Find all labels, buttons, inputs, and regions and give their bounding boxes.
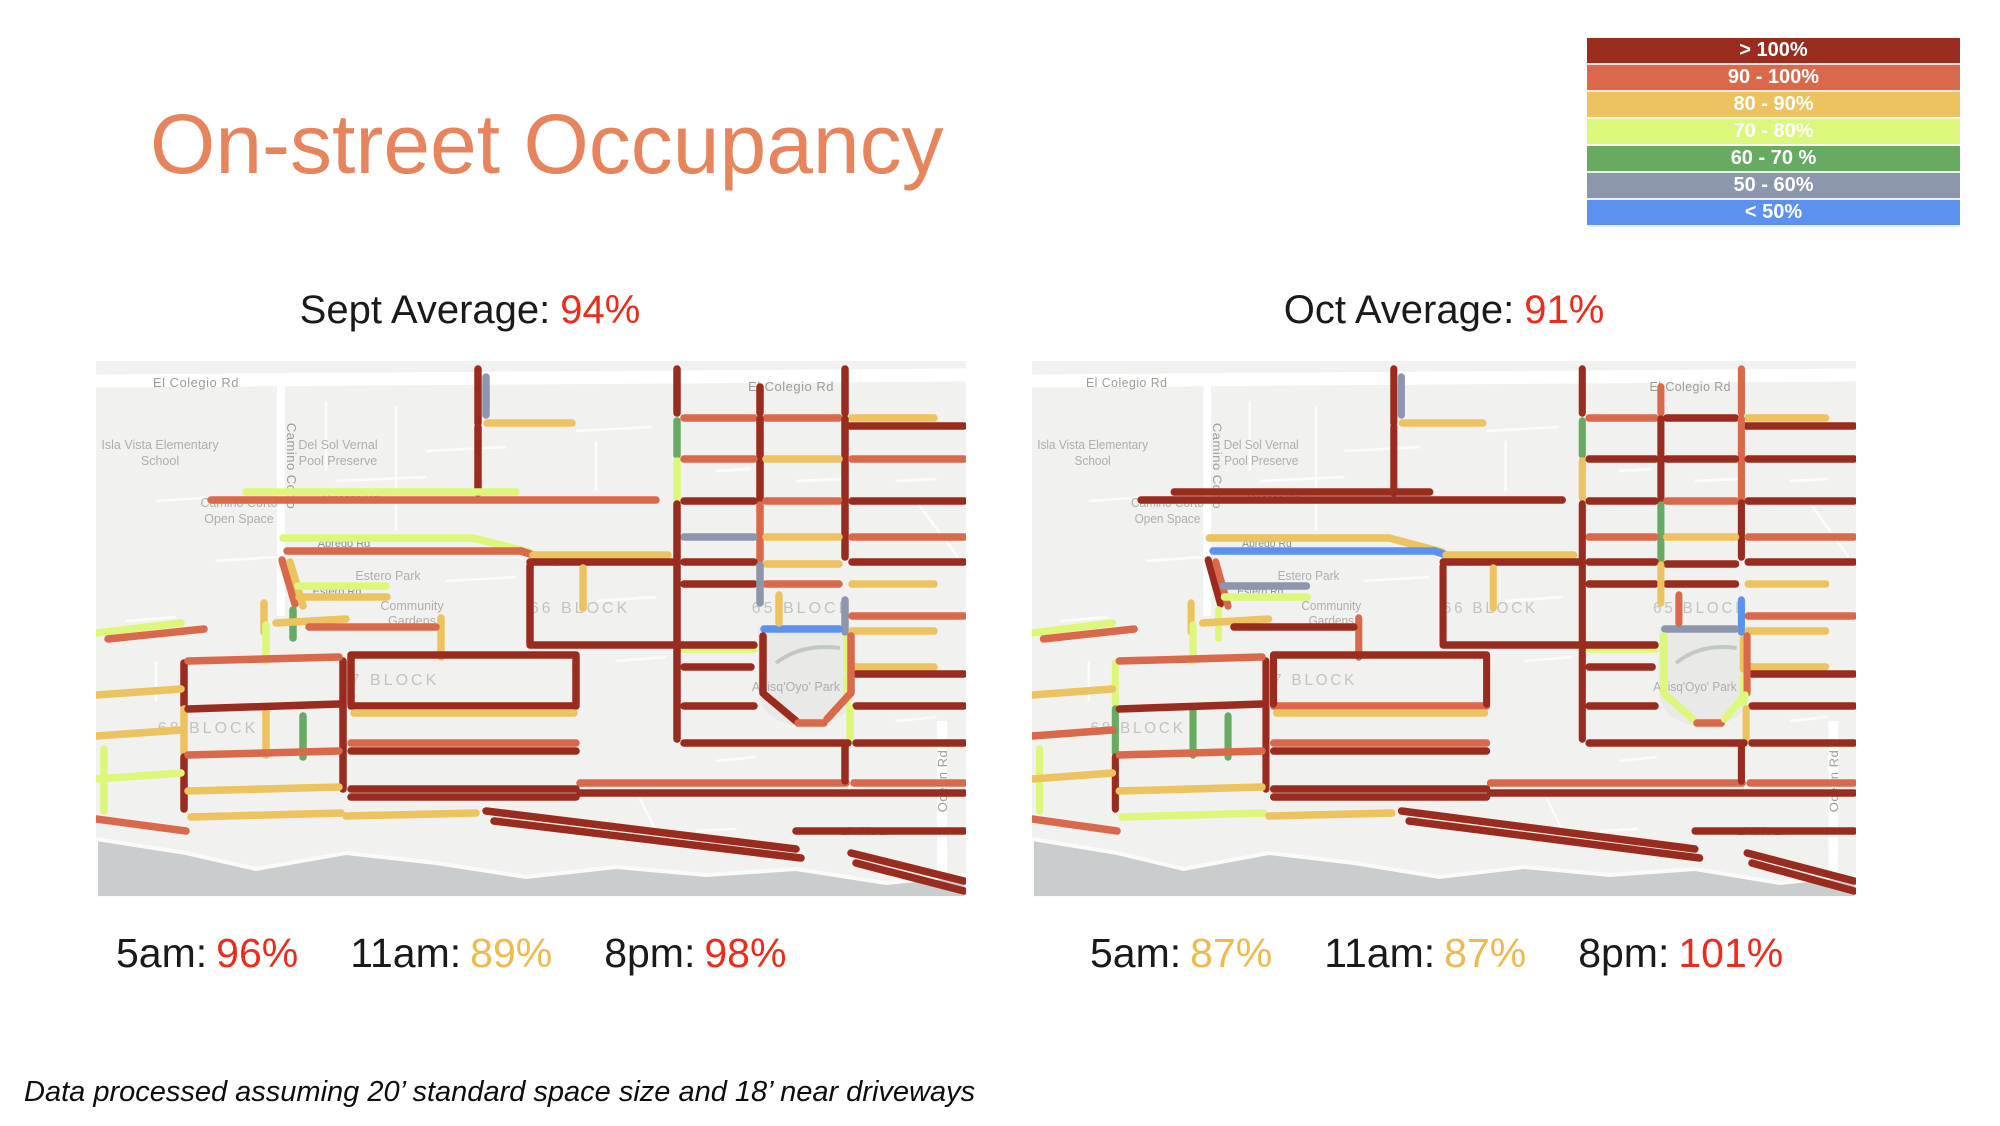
map-label: Del Sol Vernal [298,438,377,452]
stat-label: 8pm: [604,930,695,976]
oct-hourly-stats: 5am:87%11am:87%8pm:101% [1090,930,1783,977]
sept-average-label: Sept Average: [300,288,551,332]
oct-occupancy-map: El Colegio RdEl Colegio RdCamino CortoIs… [1032,361,1856,898]
map-label: School [1075,454,1111,468]
map-label: Open Space [1135,512,1201,526]
page-title: On-street Occupancy [150,96,944,193]
street-segment [1122,813,1264,817]
street-segment [191,813,341,817]
stat-value: 101% [1678,930,1783,976]
sept-occupancy-map: El Colegio RdEl Colegio RdCamino CortoIs… [96,361,966,898]
stat-label: 8pm: [1578,930,1669,976]
map-label: Camino Corto [1210,423,1224,509]
map-label: Community [1301,599,1362,613]
stat-value: 87% [1444,930,1526,976]
legend-row-label: > 100% [1739,38,1807,63]
sept-hourly-stats: 5am:96%11am:89%8pm:98% [116,930,786,977]
map-label: Pool Preserve [299,454,378,468]
sept-average-subtitle: Sept Average:94% [300,288,641,333]
map-label: Del Sol Vernal [1224,438,1299,452]
street-segment [1119,787,1262,791]
legend-row-label: 50 - 60% [1733,173,1813,198]
map-label: 65 BLOCK [1653,600,1748,617]
anisqoyo-park-shape [1659,627,1750,727]
stat-label: 5am: [116,930,207,976]
map-label: El Colegio Rd [1086,376,1167,390]
street-segment [188,787,339,791]
oct-average-value: 91% [1524,288,1604,332]
stat-item: 8pm:98% [604,930,786,977]
stat-item: 11am:89% [350,930,552,977]
anisqoyo-park-shape [758,627,854,727]
map-label: Estero Park [355,569,421,583]
map-label: Pool Preserve [1224,454,1298,468]
oct-average-label: Oct Average: [1284,288,1515,332]
map-label: Community [380,599,444,613]
legend-row: 70 - 80% [1587,119,1960,146]
map-label: Isla Vista Elementary [1037,438,1149,452]
legend-row: 50 - 60% [1587,173,1960,200]
street-segment [276,619,346,623]
stat-item: 5am:96% [116,930,298,977]
stat-item: 5am:87% [1090,930,1272,977]
street-segment [188,704,339,709]
map-label: Isla Vista Elementary [101,438,219,452]
street-segment [346,813,476,816]
stat-item: 11am:87% [1324,930,1526,977]
street-segment [1202,619,1268,623]
stat-value: 98% [704,930,786,976]
map-label: Estero Park [1278,569,1341,583]
street-segment [1269,813,1392,816]
map-label: Camino Corto [284,423,299,509]
stat-value: 89% [470,930,552,976]
stat-label: 5am: [1090,930,1181,976]
legend-row-label: < 50% [1745,200,1802,225]
map-label: School [141,454,179,468]
occupancy-legend: > 100%90 - 100%80 - 90%70 - 80%60 - 70 %… [1587,38,1960,227]
street-segment [1119,704,1262,709]
map-label: Open Space [204,512,274,526]
street-segment [1119,657,1262,661]
stat-value: 87% [1190,930,1272,976]
stat-label: 11am: [350,930,461,976]
stat-value: 96% [216,930,298,976]
legend-row-label: 70 - 80% [1733,119,1813,144]
street-segment [1119,751,1262,755]
legend-row-label: 90 - 100% [1728,65,1819,90]
legend-row-label: 80 - 90% [1733,92,1813,117]
legend-row: 80 - 90% [1587,92,1960,119]
sept-average-value: 94% [560,288,640,332]
legend-row: 60 - 70 % [1587,146,1960,173]
map-label: El Colegio Rd [153,375,239,390]
slide: On-street Occupancy > 100%90 - 100%80 - … [0,0,2000,1126]
map-label: 65 BLOCK [752,600,852,617]
legend-row: 90 - 100% [1587,65,1960,92]
stat-label: 11am: [1324,930,1435,976]
legend-row: < 50% [1587,200,1960,227]
legend-row-label: 60 - 70 % [1731,146,1817,171]
stat-item: 8pm:101% [1578,930,1783,977]
street-segment [188,751,339,755]
legend-row: > 100% [1587,38,1960,65]
oct-average-subtitle: Oct Average:91% [1284,288,1605,333]
footnote: Data processed assuming 20’ standard spa… [24,1076,975,1109]
street-segment [188,657,339,661]
